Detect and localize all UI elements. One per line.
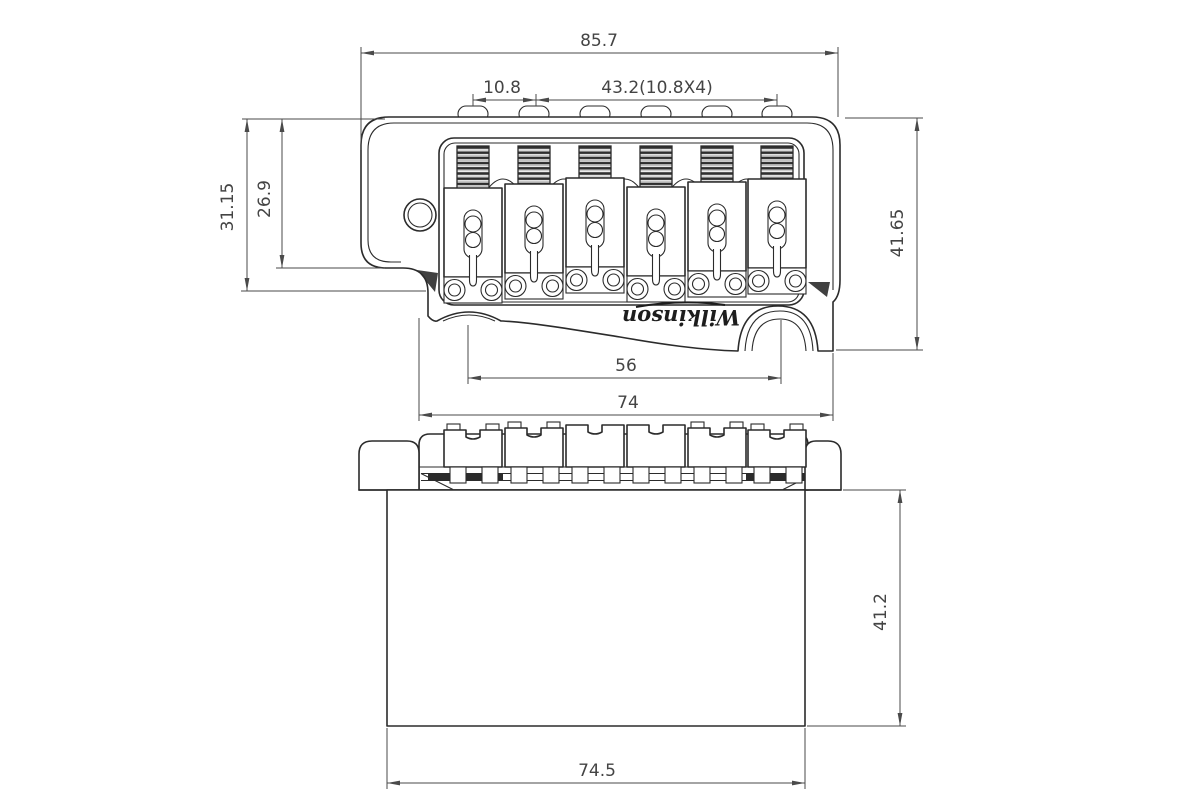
saddle-2	[505, 184, 563, 299]
tremolo-bridge-drawing: Wilkinson	[0, 0, 1200, 800]
left-arch-inner	[443, 315, 495, 321]
front-view	[359, 422, 841, 726]
spring-icon	[761, 146, 793, 181]
dimension-right-depth: 41.65	[836, 118, 923, 350]
spring-icon	[518, 146, 550, 186]
brand-text: Wilkinson	[622, 305, 740, 330]
saddle-5	[688, 182, 746, 297]
dim-label-left-inner: 26.9	[255, 180, 275, 218]
dim-label-overall-width: 85.7	[580, 31, 618, 51]
dim-label-right-depth: 41.65	[888, 209, 908, 258]
dim-label-saddle-pitch: 10.8	[483, 78, 521, 98]
dim-label-plate-width: 74	[617, 393, 639, 413]
spring-icon	[701, 146, 733, 184]
dim-label-left-outer: 31.15	[218, 183, 238, 232]
spring-icon	[579, 146, 611, 180]
plate-left-ear	[359, 441, 419, 490]
wilkinson-logo: Wilkinson	[622, 302, 740, 330]
saddle-6	[748, 179, 806, 294]
saddle-3	[566, 178, 624, 293]
spring-icon	[640, 146, 672, 189]
sustain-block	[387, 490, 805, 726]
dim-label-block-width: 74.5	[578, 761, 616, 781]
dim-label-mount-span: 56	[615, 356, 637, 376]
dim-label-block-height: 41.2	[871, 593, 891, 631]
top-view: Wilkinson	[361, 106, 840, 351]
right-arch-inner	[745, 311, 813, 351]
dimension-block-height: 41.2	[807, 490, 906, 726]
drawing-canvas: Wilkinson	[0, 0, 1200, 800]
plate-right-ear	[805, 441, 841, 490]
dimension-block-width: 74.5	[387, 728, 805, 789]
spring-icon	[457, 146, 489, 190]
saddle-4	[627, 187, 685, 302]
dim-label-saddle-span: 43.2(10.8X4)	[601, 78, 712, 98]
dimension-saddle-span: 43.2(10.8X4)	[536, 78, 777, 102]
saddle-1	[444, 188, 502, 303]
